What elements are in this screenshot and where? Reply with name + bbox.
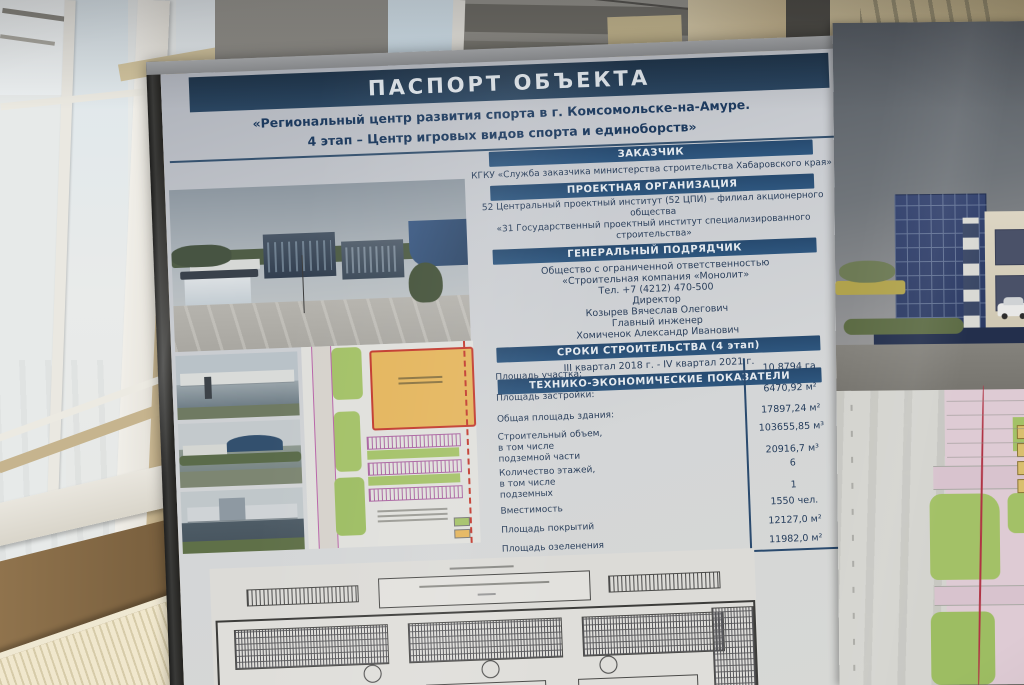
site-plan-green-3 <box>334 477 366 536</box>
rendering-tree-right <box>408 262 444 303</box>
info-board: ПАСПОРТ ОБЪЕКТА «Региональный центр разв… <box>146 35 863 685</box>
site-plan-green-1 <box>331 347 363 400</box>
floor-plan-gallery-right <box>608 571 721 592</box>
customer-header-text: ЗАКАЗЧИК <box>617 146 684 160</box>
floor-plan-title-mark <box>450 565 514 569</box>
poster-title: ПАСПОРТ ОБЪЕКТА <box>368 65 651 100</box>
floor-plan-stage-tick <box>478 593 496 596</box>
floor-plan-seating-block-3 <box>582 611 725 656</box>
photo-scene: ПАСПОРТ ОБЪЕКТА «Региональный центр разв… <box>0 0 1024 685</box>
site-plan-parking-row-3 <box>369 485 463 502</box>
section-contractor-body: Общество с ограниченной ответственностью… <box>473 252 840 349</box>
thumb1-buildings <box>180 370 294 386</box>
floor-plan-rooms-right <box>711 606 756 685</box>
thumbnail-rendering-3 <box>181 487 305 554</box>
poster-paper: ПАСПОРТ ОБЪЕКТА «Региональный центр разв… <box>160 48 862 685</box>
rendering-building-center-glass <box>345 245 400 273</box>
floor-plan-stage <box>378 570 591 608</box>
thumb1-bank <box>177 403 299 420</box>
site-plan-building-footprint <box>369 347 476 431</box>
thumbnail-rendering-2 <box>178 419 302 488</box>
thumb2-ground <box>180 467 303 488</box>
row-value: 6470,92 м² <box>746 381 834 395</box>
right-poster-glare <box>833 21 1024 685</box>
row-value: 103655,85 м³ 20916,7 м³ <box>747 419 836 455</box>
row-value: 6 1 <box>749 455 838 491</box>
tech-table: Площадь участка: 10,8794 га Площадь заст… <box>481 355 840 562</box>
floor-plan-seating-block-2 <box>408 617 563 663</box>
site-plan <box>301 341 481 549</box>
main-rendering <box>169 179 471 352</box>
floor-plan-gallery-left <box>246 585 359 606</box>
row-value: 12127,0 м² <box>751 513 839 527</box>
rendering-building-left-glass <box>267 240 332 272</box>
row-value: 1550 чел. <box>750 494 838 508</box>
right-poster <box>833 21 1024 685</box>
floor-plan-seating-block-1 <box>234 624 389 670</box>
site-plan-legend-orange <box>454 529 470 539</box>
thumb2-dome-building <box>226 434 283 452</box>
row-value: 10,8794 га <box>745 360 833 374</box>
row-value: 11982,0 м² <box>752 532 840 546</box>
floor-plan-stage-label-mark <box>419 581 549 588</box>
row-value: 17897,24 м² <box>747 402 835 416</box>
thumbnail-rendering-1 <box>175 351 299 420</box>
site-plan-green-2 <box>334 411 362 472</box>
floor-plan <box>210 548 760 685</box>
info-column: ЗАКАЗЧИК КГКУ «Служба заказчика министер… <box>469 137 848 561</box>
thumb3-bank <box>182 537 304 554</box>
site-plan-note-lines <box>377 508 447 513</box>
site-plan-legend-green <box>454 517 470 527</box>
rendering-building-right-roof <box>408 219 468 267</box>
thumb1-statue <box>204 377 212 399</box>
thumb3-tall-block <box>219 498 246 521</box>
